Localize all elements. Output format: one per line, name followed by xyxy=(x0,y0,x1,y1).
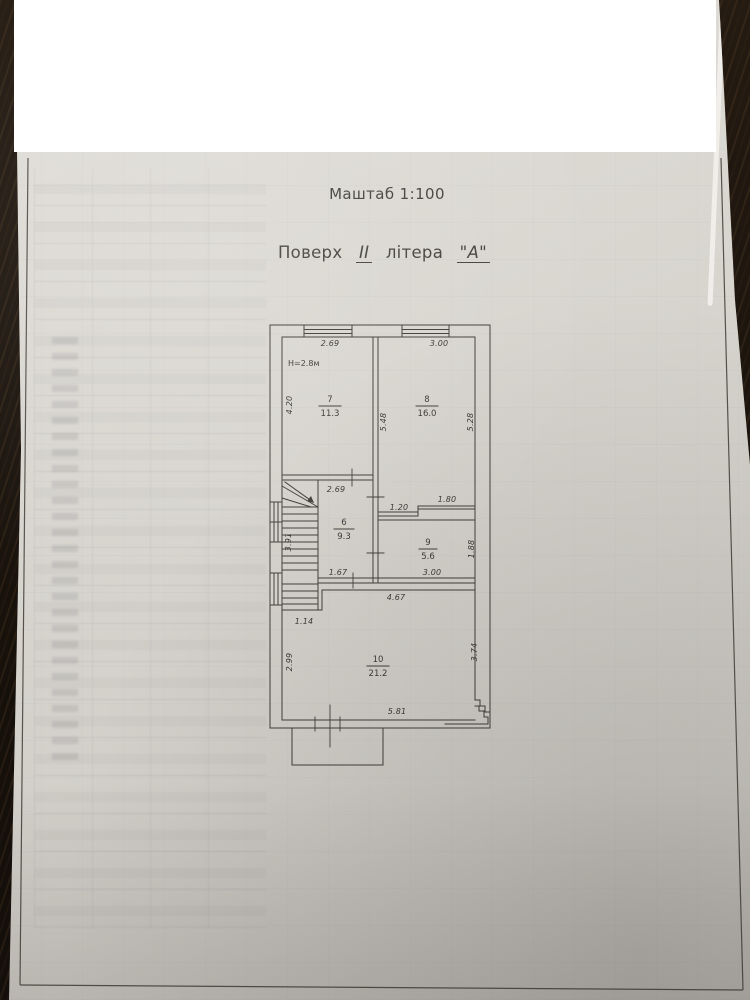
floor-prefix: Поверх xyxy=(278,243,342,262)
dim-stair-notch: 1.14 xyxy=(295,617,314,626)
floor-title: Поверх II літера "А" xyxy=(274,243,494,262)
dim-wall-7-8: 5.48 xyxy=(379,413,388,432)
svg-text:5.6: 5.6 xyxy=(421,552,435,562)
dim-room7-top: 2.69 xyxy=(321,339,340,348)
room-label-10: 10 21.2 xyxy=(367,655,389,679)
dim-room9-bottom: 3.00 xyxy=(423,568,442,577)
dim-room10-left: 2.99 xyxy=(285,653,294,672)
room-label-8: 8 16.0 xyxy=(416,395,438,419)
dim-room10-right: 3.74 xyxy=(470,643,479,662)
dim-room7-left: 4.20 xyxy=(285,396,294,415)
dim-room6-top: 2.69 xyxy=(327,485,346,494)
room-label-7: 7 11.3 xyxy=(319,395,341,419)
dim-room10-bottom: 5.81 xyxy=(388,707,407,716)
floor-middle: літера xyxy=(386,243,443,262)
window-stairs-lower xyxy=(269,573,283,605)
room-label-9: 9 5.6 xyxy=(419,538,437,562)
dim-room9-right: 1.88 xyxy=(467,540,476,559)
floor-numeral: II xyxy=(356,243,372,263)
svg-text:11.3: 11.3 xyxy=(321,409,340,419)
dim-room6-bottom: 1.67 xyxy=(329,568,348,577)
svg-text:10: 10 xyxy=(373,655,384,665)
svg-text:9.3: 9.3 xyxy=(337,532,351,542)
window-room8 xyxy=(402,324,449,338)
dim-stairs-left: 3.91 xyxy=(284,533,293,552)
dim-room9-top-right: 1.80 xyxy=(438,495,457,504)
dim-room10-top: 4.67 xyxy=(387,593,406,602)
interior-walls xyxy=(282,337,475,610)
svg-text:21.2: 21.2 xyxy=(369,669,388,679)
door-ticks xyxy=(315,469,384,747)
svg-text:8: 8 xyxy=(424,395,429,405)
scale-label: Маштаб 1:100 xyxy=(329,185,445,203)
balcony xyxy=(292,728,383,765)
dim-room9-top-left: 1.20 xyxy=(390,503,409,512)
room-label-6: 6 9.3 xyxy=(334,518,354,542)
dim-room8-right: 5.28 xyxy=(466,413,475,432)
svg-text:6: 6 xyxy=(341,518,346,528)
window-room7 xyxy=(304,324,352,338)
photo-stage: Маштаб 1:100 Поверх II літера "А" xyxy=(0,0,750,1000)
floor-letter: "А" xyxy=(457,243,490,263)
floor-plan: 2.69 3.00 Н=2.8м 4.20 5.48 5.28 2.69 1.2… xyxy=(255,310,505,770)
dim-room8-top: 3.00 xyxy=(430,339,449,348)
svg-text:9: 9 xyxy=(425,538,430,548)
window-stairs-upper xyxy=(269,502,283,542)
svg-text:16.0: 16.0 xyxy=(418,409,437,419)
height-note: Н=2.8м xyxy=(288,359,319,368)
redaction-box xyxy=(14,0,716,152)
svg-text:7: 7 xyxy=(327,395,332,405)
exterior-walls xyxy=(270,325,490,728)
